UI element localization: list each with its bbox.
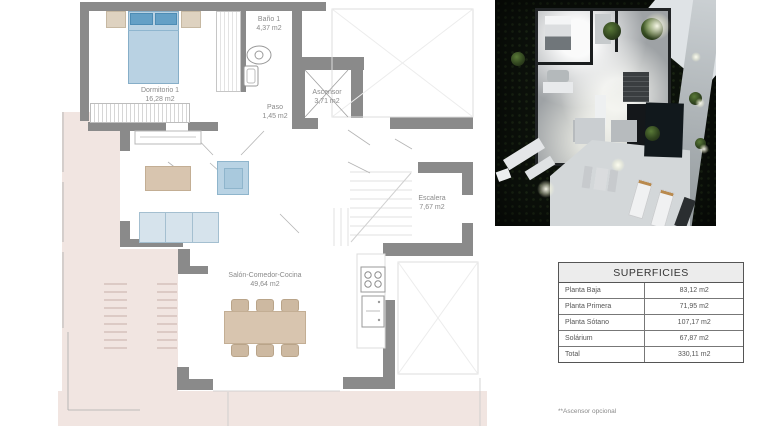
nightstand: [181, 11, 201, 28]
render-bed: [545, 16, 571, 50]
wall-segment: [390, 117, 473, 129]
table-row: Planta Sótano 107,17 m2: [559, 315, 743, 331]
row-value: 67,87 m2: [645, 331, 743, 346]
bed-fold-line: [128, 30, 179, 31]
table-row: Planta Baja 83,12 m2: [559, 283, 743, 299]
row-value: 71,95 m2: [645, 299, 743, 314]
room-area: 3,71 m2: [312, 97, 341, 106]
room-area: 49,64 m2: [228, 280, 301, 289]
room-label-ascensor: Ascensor 3,71 m2: [312, 88, 341, 106]
terrace-porch: [83, 249, 178, 392]
plant: [645, 126, 660, 141]
row-label: Planta Baja: [559, 283, 645, 298]
room-label-bano: Baño 1 4,37 m2: [256, 15, 281, 33]
surfaces-table-title: SUPERFICIES: [559, 263, 743, 283]
row-value: 83,12 m2: [645, 283, 743, 298]
row-value: 330,11 m2: [645, 347, 743, 362]
table-row: Total 330,11 m2: [559, 347, 743, 362]
room-area: 4,37 m2: [256, 24, 281, 33]
render-outdoor-table: [496, 168, 512, 182]
render-sofa: [543, 82, 573, 93]
room-name: Paso: [262, 103, 287, 112]
dining-table: [224, 311, 306, 344]
room-name: Escalera: [418, 194, 445, 203]
room-area: 7,67 m2: [418, 203, 445, 212]
wall-segment: [188, 122, 218, 131]
floor-plan: Dormitorio 1 16,28 m2 Baño 1 4,37 m2 Pas…: [0, 0, 495, 433]
sofa-seam: [165, 213, 166, 242]
light-glow: [611, 158, 625, 172]
render-stairs: [623, 72, 649, 102]
plant: [603, 22, 621, 40]
wall-segment: [178, 249, 190, 274]
render-dining-set: [575, 118, 605, 144]
light-glow: [699, 144, 709, 154]
wall-segment: [383, 243, 473, 256]
coffee-table: [145, 166, 191, 191]
plant: [511, 52, 525, 66]
wall-segment: [292, 118, 318, 129]
light-glow: [691, 52, 701, 62]
wall-segment: [120, 130, 130, 151]
render-inner-wall: [590, 10, 593, 65]
wardrobe: [90, 103, 190, 123]
row-label: Total: [559, 347, 645, 362]
render-inner-wall: [538, 62, 593, 65]
row-label: Solárium: [559, 331, 645, 346]
dining-chair: [231, 344, 249, 357]
armchair-cushion: [224, 168, 243, 189]
bed-pillow: [130, 13, 153, 25]
sofa: [139, 212, 219, 243]
room-label-dormitorio: Dormitorio 1 16,28 m2: [141, 86, 179, 104]
row-value: 107,17 m2: [645, 315, 743, 330]
wall-segment: [190, 266, 208, 274]
wall-segment: [188, 379, 213, 390]
wall-segment: [80, 2, 326, 11]
wall-segment: [80, 2, 89, 121]
room-name: Baño 1: [256, 15, 281, 24]
light-glow: [695, 98, 705, 108]
row-label: Planta Primera: [559, 299, 645, 314]
surfaces-table: SUPERFICIES Planta Baja 83,12 m2 Planta …: [558, 262, 744, 363]
room-area: 1,45 m2: [262, 112, 287, 121]
footnote: **Ascensor opcional: [558, 408, 616, 415]
render-rug: [547, 70, 569, 82]
nightstand: [106, 11, 126, 28]
light-glow: [537, 180, 555, 198]
room-label-salon: Salón-Comedor-Cocina 49,64 m2: [228, 271, 301, 289]
room-name: Dormitorio 1: [141, 86, 179, 95]
row-label: Planta Sótano: [559, 315, 645, 330]
wall-segment: [383, 300, 395, 380]
aerial-3d-render: [495, 0, 716, 226]
room-area: 16,28 m2: [141, 95, 179, 104]
bed-pillow: [155, 13, 177, 25]
room-label-paso: Paso 1,45 m2: [262, 103, 287, 121]
wall-segment: [462, 162, 473, 195]
terrace-bottom: [58, 391, 487, 426]
shower: [216, 11, 241, 92]
dining-chair: [281, 344, 299, 357]
room-label-escalera: Escalera 7,67 m2: [418, 194, 445, 212]
dining-chair: [256, 344, 274, 357]
page: Dormitorio 1 16,28 m2 Baño 1 4,37 m2 Pas…: [0, 0, 770, 433]
wall-segment: [351, 60, 363, 118]
room-name: Salón-Comedor-Cocina: [228, 271, 301, 280]
table-row: Solárium 67,87 m2: [559, 331, 743, 347]
wall-segment: [292, 11, 302, 57]
room-name: Ascensor: [312, 88, 341, 97]
table-row: Planta Primera 71,95 m2: [559, 299, 743, 315]
light-glow: [643, 12, 671, 40]
sofa-seam: [192, 213, 193, 242]
